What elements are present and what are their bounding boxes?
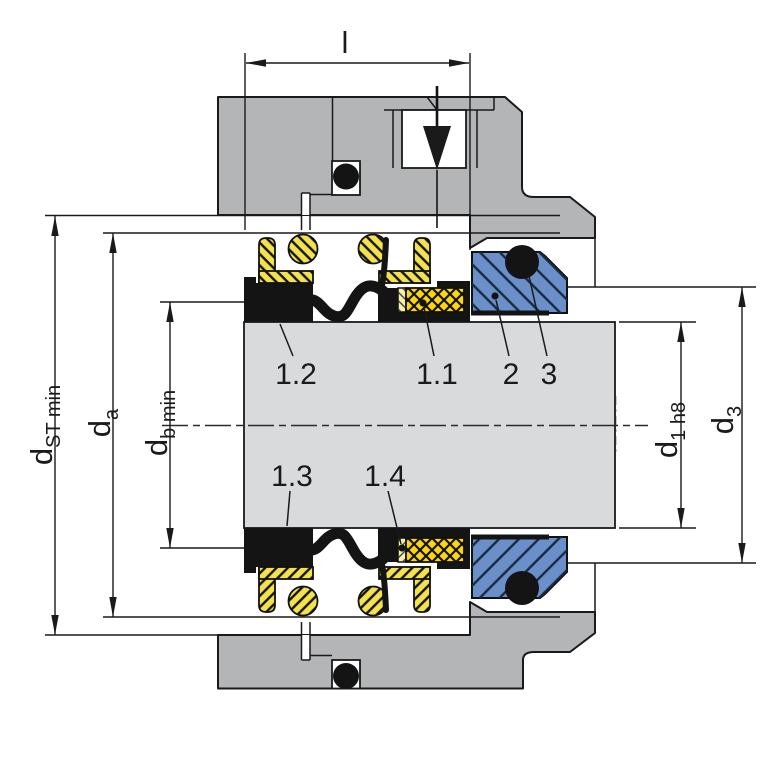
mechanical-seal-cross-section-diagram: l dST min da db m — [0, 0, 768, 768]
part-label-1-2: 1.2 — [275, 358, 317, 391]
bellows-membrane — [308, 286, 383, 317]
dim-label-d-st: dST min — [24, 385, 65, 465]
dim-label-d-a: da — [82, 408, 123, 437]
part-label-1-1: 1.1 — [416, 358, 458, 391]
upper-housing — [218, 97, 595, 248]
lower-housing-oring — [333, 663, 359, 689]
part-label-2: 2 — [503, 358, 520, 391]
leader-dot — [398, 544, 405, 551]
upper-housing-oring — [333, 164, 359, 190]
dim-arrow-left-icon — [246, 59, 266, 67]
dim-label-length: l — [342, 25, 349, 60]
dim-label-d-3: d3 — [705, 406, 746, 434]
seat-oring — [505, 245, 539, 279]
leader-dot — [491, 292, 498, 299]
dim-d-1-h8: d1 h8 — [619, 322, 696, 528]
seal-assembly-lower — [244, 528, 567, 616]
lower-housing — [218, 602, 595, 689]
seal-assembly-upper — [244, 235, 567, 323]
part-label-1-3: 1.3 — [271, 460, 313, 493]
part-label-3: 3 — [541, 358, 558, 391]
seal-drawing-page: l dST min da db m — [0, 0, 768, 768]
part-label-1-4: 1.4 — [364, 460, 406, 493]
dim-arrow-right-icon — [449, 59, 469, 67]
dim-label-d-1: d1 h8 — [649, 402, 690, 458]
dim-label-d-b: db min — [139, 390, 180, 456]
leader-dot — [419, 299, 426, 306]
lower-drill-slot — [302, 635, 311, 660]
upper-drill-slot — [302, 193, 311, 215]
